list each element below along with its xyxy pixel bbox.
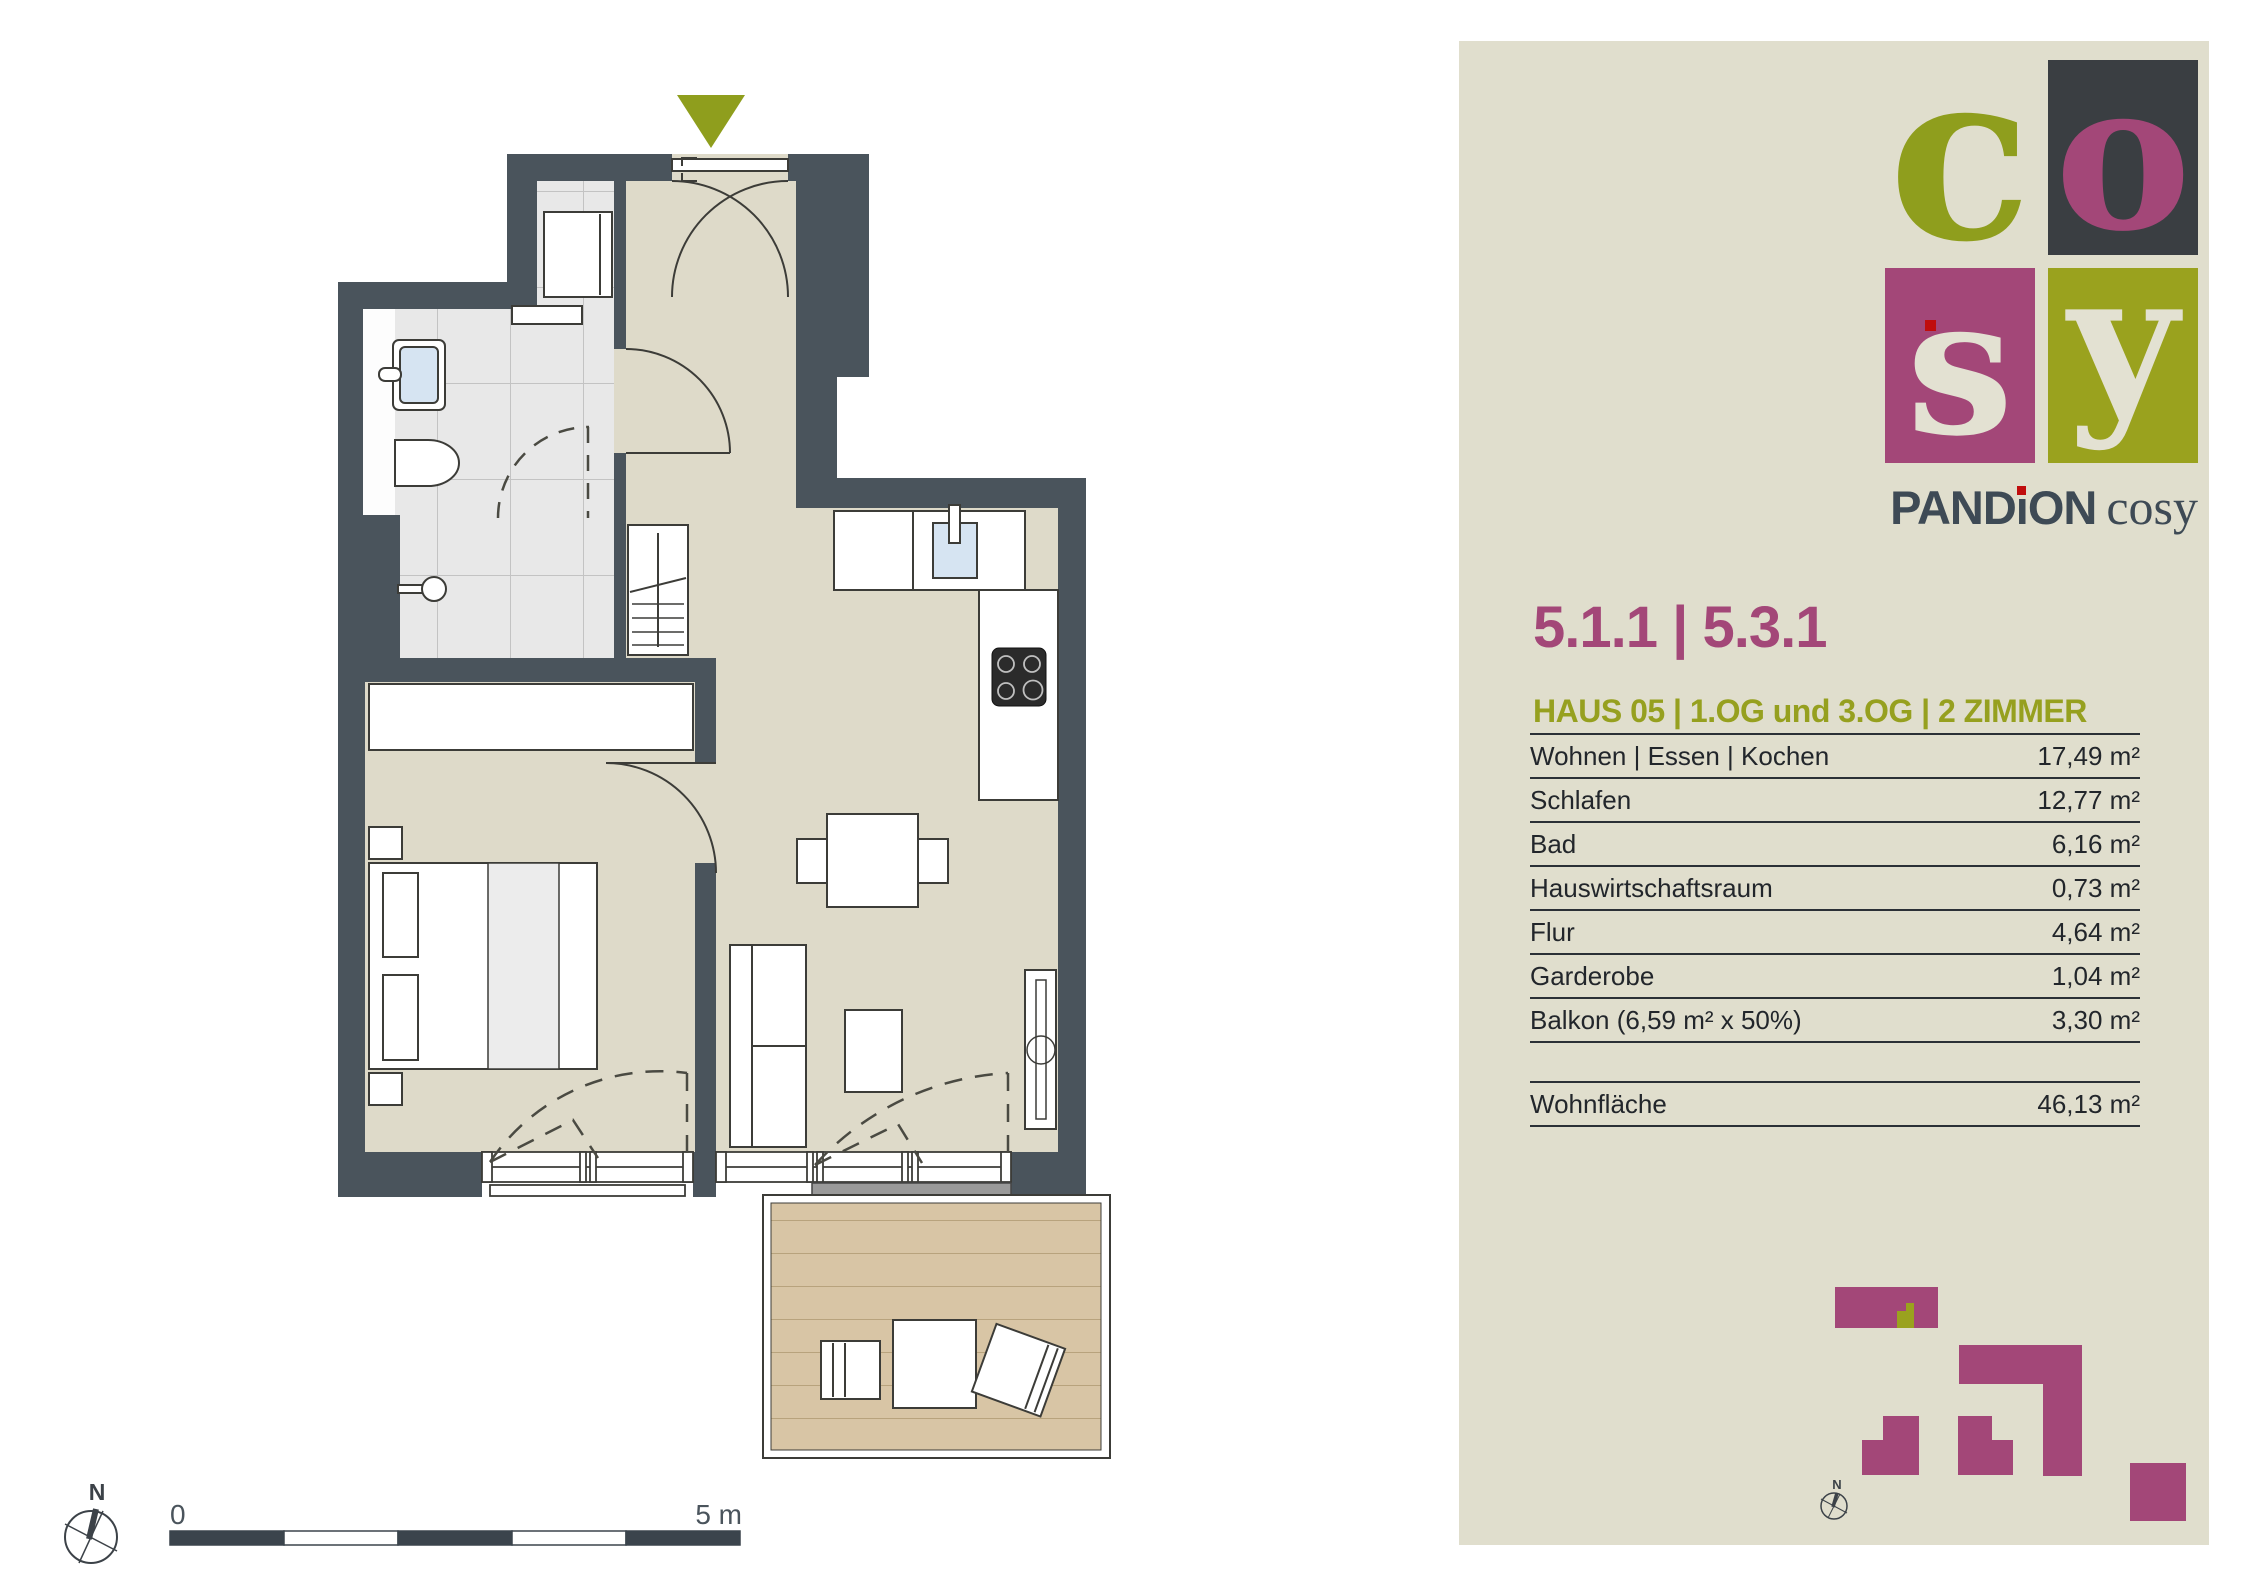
logo-tile-y: y <box>2048 230 2198 463</box>
svg-text:s: s <box>1907 255 2014 478</box>
room-area-value: 17,49 m² <box>2037 741 2140 772</box>
room-area-value: 4,64 m² <box>2052 917 2140 948</box>
logo-tile-s: s <box>1885 255 2035 478</box>
total-area-row: Wohnfläche 46,13 m² <box>1530 1081 2140 1127</box>
bed <box>369 863 597 1069</box>
unit-number-title: 5.1.1 | 5.3.1 <box>1533 594 1826 661</box>
compass-icon <box>65 1509 117 1563</box>
area-row: Hauswirtschaftsraum 0,73 m² <box>1530 867 2140 911</box>
total-area-value: 46,13 m² <box>2037 1089 2140 1120</box>
balcony-door-window <box>716 1152 1011 1182</box>
room-label: Schlafen <box>1530 785 1631 816</box>
floor-plan <box>338 95 1110 1458</box>
entrance-arrow-icon <box>677 95 745 148</box>
balcony <box>763 1195 1110 1458</box>
wall-niche-shelf <box>512 306 582 324</box>
radiator <box>1025 970 1056 1129</box>
scale-start-label: 0 <box>170 1499 186 1530</box>
total-label: Wohnfläche <box>1530 1089 1667 1120</box>
toilet <box>395 440 459 486</box>
brand-wordmark: PANDiONcosy <box>1598 478 2198 536</box>
bath-door-threshold <box>614 349 626 453</box>
room-label: Balkon (6,59 m² x 50%) <box>1530 1005 1802 1036</box>
site-compass-icon <box>1821 1493 1847 1519</box>
nightstand <box>369 827 402 859</box>
room-area-value: 6,16 m² <box>2052 829 2140 860</box>
scale-end-label: 5 m <box>695 1499 742 1530</box>
room-label: Wohnen | Essen | Kochen <box>1530 741 1829 772</box>
washing-machine <box>544 212 612 297</box>
unit-subtitle: HAUS 05 | 1.OG und 3.OG | 2 ZIMMER <box>1533 693 2087 730</box>
room-label: Flur <box>1530 917 1575 948</box>
area-row: Garderobe 1,04 m² <box>1530 955 2140 999</box>
scale-bar <box>170 1531 740 1545</box>
bedroom-wardrobe <box>369 684 693 750</box>
area-row: Bad 6,16 m² <box>1530 823 2140 867</box>
area-row: Wohnen | Essen | Kochen 17,49 m² <box>1530 733 2140 779</box>
coffee-table <box>845 1010 902 1092</box>
area-row: Balkon (6,59 m² x 50%) 3,30 m² <box>1530 999 2140 1043</box>
stove <box>992 648 1046 706</box>
cosy-logo: c o s y <box>1885 18 2198 478</box>
sofa <box>730 945 806 1147</box>
logo-red-dot <box>1925 320 1936 331</box>
site-building <box>2130 1463 2186 1521</box>
site-building <box>1835 1287 1938 1328</box>
room-area-value: 3,30 m² <box>2052 1005 2140 1036</box>
room-area-value: 12,77 m² <box>2037 785 2140 816</box>
room-area-value: 0,73 m² <box>2052 873 2140 904</box>
site-plan-minimap: N <box>1821 1287 2186 1521</box>
site-building <box>1958 1416 2013 1475</box>
room-label: Garderobe <box>1530 961 1654 992</box>
garderobe-wardrobe <box>628 525 688 655</box>
room-area-value: 1,04 m² <box>2052 961 2140 992</box>
balcony-chair <box>821 1341 880 1399</box>
logo-tile-o: o <box>2048 37 2198 277</box>
room-area-table: Wohnen | Essen | Kochen 17,49 m² Schlafe… <box>1530 733 2140 1127</box>
site-north-label: N <box>1832 1477 1841 1492</box>
nightstand <box>369 1073 402 1105</box>
site-building <box>1862 1416 1919 1475</box>
area-row: Schlafen 12,77 m² <box>1530 779 2140 823</box>
room-label: Bad <box>1530 829 1576 860</box>
bedroom-window <box>482 1152 693 1196</box>
area-row: Flur 4,64 m² <box>1530 911 2140 955</box>
logo-letter-c: c <box>1888 18 2031 294</box>
shower-strip <box>363 309 395 515</box>
balcony-table <box>893 1320 976 1408</box>
svg-text:o: o <box>2055 37 2192 277</box>
room-label: Hauswirtschaftsraum <box>1530 873 1773 904</box>
svg-text:y: y <box>2065 230 2183 453</box>
north-label: N <box>89 1479 106 1505</box>
